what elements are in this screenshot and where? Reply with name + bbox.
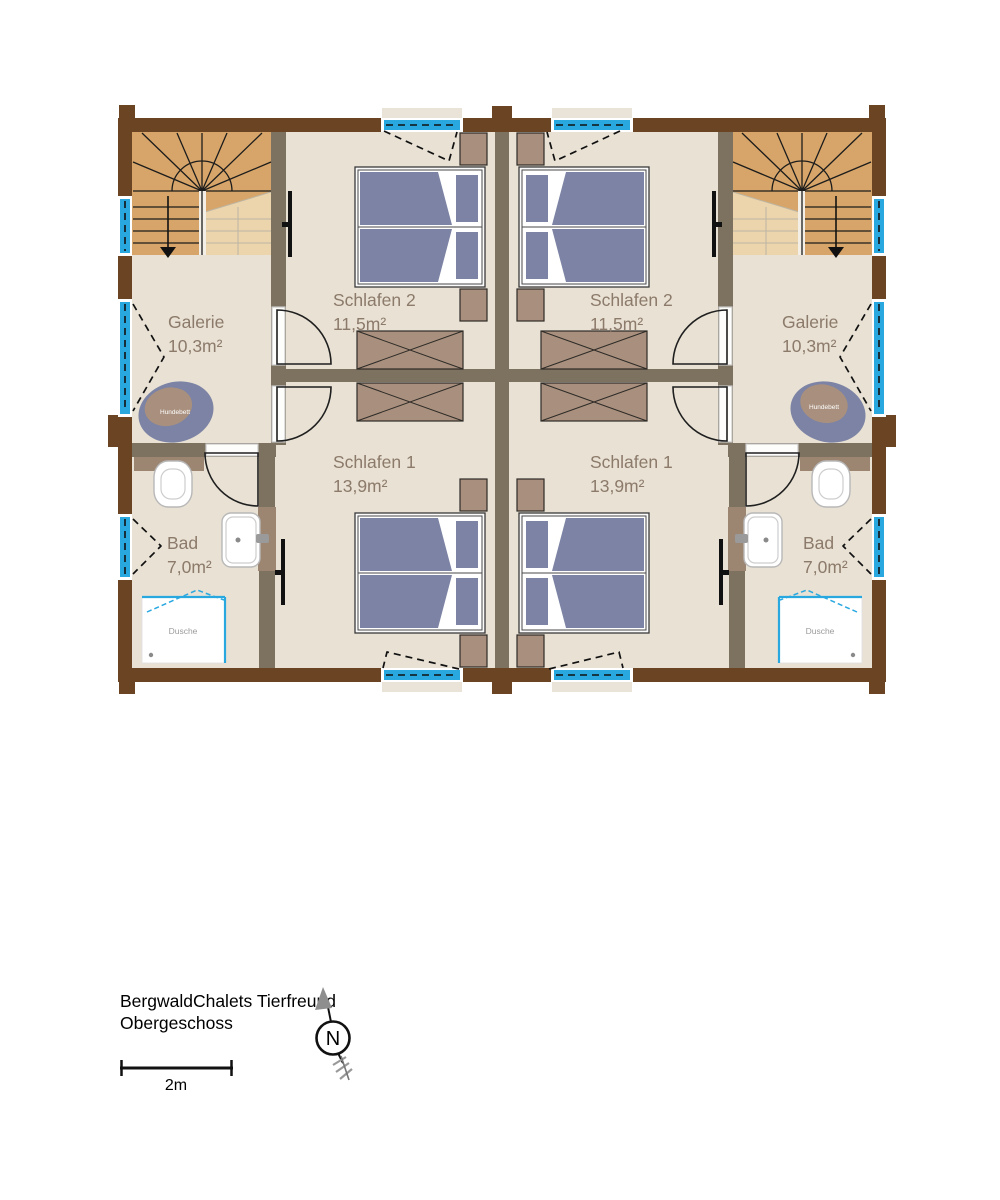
party-wall: [495, 132, 509, 668]
north-arrow-feather: [333, 1056, 352, 1080]
title-block: BergwaldChalets Tierfreund Obergeschoss: [120, 991, 336, 1033]
log-end-top-center: [492, 106, 512, 118]
shower-right-label: Dusche: [806, 626, 835, 636]
log-end-bottom-left: [119, 668, 135, 694]
label-schlafen2-right-area: 11,5m²: [590, 314, 643, 334]
scale-bar: 2m: [120, 1060, 233, 1094]
label-galerie-left-name: Galerie: [168, 312, 224, 332]
dog-bed-right-label: Hundebett: [809, 404, 839, 411]
floor-plan-drawing: Hundebett Hundebett Dusche: [0, 0, 1000, 1200]
label-bad-right-area: 7,0m²: [803, 557, 848, 577]
shower-right: Dusche: [779, 590, 862, 663]
label-galerie-right-area: 10,3m²: [782, 336, 837, 356]
window-right-stair: [872, 196, 886, 256]
label-schlafen2-left-area: 11,5m²: [333, 314, 386, 334]
plan-title-line2: Obergeschoss: [120, 1013, 233, 1033]
label-schlafen2-right-name: Schlafen 2: [590, 290, 673, 310]
bed-schlafen2-left: [355, 167, 485, 287]
bed-schlafen2-right: [519, 167, 649, 287]
dog-bed-left-label: Hundebett: [160, 409, 190, 416]
label-schlafen1-left-area: 13,9m²: [333, 476, 388, 496]
log-end-bottom-center: [492, 682, 512, 694]
log-end-bottom-right: [869, 668, 885, 694]
sink-tap-right: [735, 534, 748, 543]
label-schlafen2-left-name: Schlafen 2: [333, 290, 416, 310]
label-galerie-right-name: Galerie: [782, 312, 838, 332]
plan-title-line1: BergwaldChalets Tierfreund: [120, 991, 336, 1011]
wardrobe-schlafen2-left: [357, 331, 463, 369]
staircase-left: [132, 132, 271, 258]
label-schlafen1-right-name: Schlafen 1: [590, 452, 673, 472]
north-arrow-n: N: [326, 1028, 340, 1050]
log-end-top-right: [869, 105, 885, 132]
toilet-right: [812, 461, 850, 507]
window-left-stair: [118, 196, 132, 256]
scale-bar-label: 2m: [165, 1077, 187, 1094]
wardrobe-schlafen1-right: [541, 383, 647, 421]
sink-tap-left: [256, 534, 269, 543]
log-end-top-left: [119, 105, 135, 132]
floor-plan-page: Hundebett Hundebett Dusche: [0, 0, 1000, 1200]
label-bad-left-name: Bad: [167, 533, 198, 553]
wardrobe-schlafen1-left: [357, 383, 463, 421]
label-bad-left-area: 7,0m²: [167, 557, 212, 577]
label-bad-right-name: Bad: [803, 533, 834, 553]
label-galerie-left-area: 10,3m²: [168, 336, 223, 356]
label-schlafen1-left-name: Schlafen 1: [333, 452, 416, 472]
shower-left-label: Dusche: [169, 626, 198, 636]
shower-left: Dusche: [142, 590, 225, 663]
log-end-right-mid: [886, 415, 896, 447]
bed-schlafen1-left: [355, 513, 485, 633]
bed-schlafen1-right: [519, 513, 649, 633]
log-end-left-mid: [108, 415, 118, 447]
wardrobe-schlafen2-right: [541, 331, 647, 369]
label-schlafen1-right-area: 13,9m²: [590, 476, 645, 496]
toilet-left: [154, 461, 192, 507]
staircase-right: [733, 132, 872, 258]
